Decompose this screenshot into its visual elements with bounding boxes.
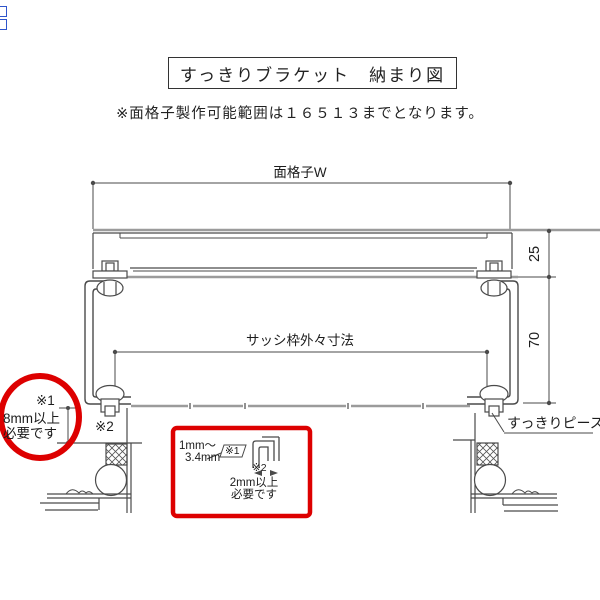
grille-frame <box>93 230 600 277</box>
detail-req-line2: 必要です <box>220 489 288 502</box>
detail-req-line1: 2mm以上 <box>220 477 288 490</box>
dimension-25-label: 25 <box>528 234 544 274</box>
top-width-dimension-label: 面格子W <box>0 166 600 181</box>
sash-width-dimension <box>113 350 489 390</box>
top-left-bolt <box>93 261 127 296</box>
detail-range-line2: 3.4mm <box>185 452 220 465</box>
top-width-dimension <box>91 181 512 231</box>
bottom-left-bolt <box>96 386 124 417</box>
detail-range-line1: 1mm～ <box>179 440 216 453</box>
drawing-page: すっきりブラケット 納まり図 ※面格子製作可能範囲は１６５１３までとなります。 … <box>0 0 600 600</box>
gap-note-line2: 必要です <box>3 427 57 442</box>
top-right-bolt <box>477 261 511 296</box>
page-title: すっきりブラケット 納まり図 <box>168 57 457 89</box>
detail-ref1-label: ※1 <box>225 446 240 458</box>
dimension-70-label: 70 <box>528 320 544 360</box>
gap-note-line1: 8mm以上 <box>3 412 60 427</box>
diagram-canvas <box>0 0 600 600</box>
sash-width-dimension-label: サッシ枠外々寸法 <box>0 334 600 349</box>
detail-ref2-label: ※2 <box>252 463 267 475</box>
sukkiri-piece-label: すっきりピース <box>507 416 600 431</box>
page-title-text: すっきりブラケット 納まり図 <box>180 61 445 86</box>
gap-ref2-label: ※2 <box>95 420 114 435</box>
gap-ref1-label: ※1 <box>36 394 55 409</box>
bottom-right-bolt <box>480 386 508 417</box>
production-range-note: ※面格子製作可能範囲は１６５１３までとなります。 <box>0 107 600 123</box>
sash-top-edge <box>131 403 470 409</box>
